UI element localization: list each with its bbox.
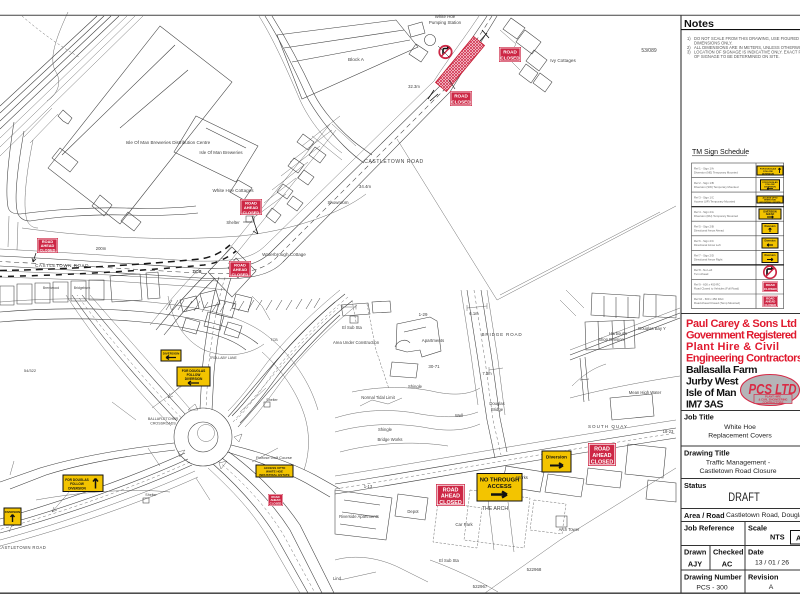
svg-text:CONTRACTORS: CONTRACTORS [763, 400, 784, 404]
svg-text:Access (UP) Temporary Mounted: Access (UP) Temporary Mounted [694, 200, 736, 204]
svg-text:Diversion: Diversion [546, 454, 567, 459]
svg-text:Lind: Lind [333, 576, 342, 581]
svg-text:Showroom: Showroom [328, 200, 349, 205]
svg-text:AJY: AJY [688, 560, 702, 569]
svg-text:NTS: NTS [770, 533, 785, 542]
svg-text:Well: Well [455, 413, 463, 418]
svg-text:White Hoe: White Hoe [435, 14, 456, 19]
svg-text:Drawing Title: Drawing Title [684, 449, 730, 458]
svg-text:Isle of Man: Isle of Man [686, 387, 737, 399]
svg-text:ROAD: ROAD [443, 487, 459, 493]
svg-text:Ballasalla Farm: Ballasalla Farm [686, 364, 758, 376]
svg-text:INDUSTRIAL ESTATE: INDUSTRIAL ESTATE [759, 201, 781, 204]
svg-text:AHEAD: AHEAD [766, 213, 775, 216]
svg-text:CLOSED: CLOSED [270, 501, 282, 505]
svg-text:Waterbrough Cottage: Waterbrough Cottage [262, 252, 306, 257]
svg-text:Shingle: Shingle [378, 427, 393, 432]
svg-text:18-23: 18-23 [663, 429, 674, 434]
svg-text:CLOSED: CLOSED [500, 55, 520, 60]
svg-text:Riverside Apartments: Riverside Apartments [339, 514, 379, 519]
svg-text:CROSSROADS: CROSSROADS [150, 422, 176, 426]
svg-text:TCB: TCB [270, 338, 278, 342]
svg-text:Jurby West: Jurby West [686, 376, 739, 388]
svg-text:CLOSED: CLOSED [40, 249, 56, 253]
svg-text:AHEAD: AHEAD [592, 453, 611, 459]
svg-text:DIVERSION: DIVERSION [163, 352, 180, 356]
svg-text:CLOSED: CLOSED [764, 303, 776, 307]
svg-text:Shelter: Shelter [145, 493, 157, 497]
svg-text:Isle Of Man Breweries: Isle Of Man Breweries [199, 150, 243, 155]
svg-text:Pumping Station: Pumping Station [429, 20, 462, 25]
svg-text:El Sub Sta: El Sub Sta [439, 558, 459, 563]
svg-text:Directional Arrow Left: Directional Arrow Left [694, 243, 721, 247]
svg-text:Checked: Checked [713, 548, 743, 557]
svg-text:Car Park: Car Park [455, 522, 473, 527]
svg-text:White Hoe Cottages: White Hoe Cottages [212, 188, 254, 193]
svg-text:ROAD: ROAD [454, 94, 468, 99]
svg-text:Brentwood: Brentwood [43, 286, 59, 290]
svg-text:Engineering Contractors: Engineering Contractors [686, 353, 800, 365]
svg-text:Bridge Works: Bridge Works [377, 437, 402, 442]
svg-text:Area Under Construction: Area Under Construction [333, 340, 380, 345]
svg-text:13 / 01 / 26: 13 / 01 / 26 [755, 560, 789, 567]
svg-text:Pulrose Golf Course: Pulrose Golf Course [256, 455, 293, 460]
svg-text:INDUSTRIAL ESTATE: INDUSTRIAL ESTATE [259, 473, 289, 477]
svg-text:AHEAD: AHEAD [441, 494, 460, 500]
svg-text:TM Sign Schedule: TM Sign Schedule [692, 149, 749, 156]
svg-text:Road Ahead Closed (Temp Mounte: Road Ahead Closed (Temp Mounted) [694, 301, 740, 305]
svg-text:Diversion: Diversion [765, 225, 776, 228]
svg-text:CASTLETOWN ROAD: CASTLETOWN ROAD [35, 263, 89, 268]
svg-text:30-71: 30-71 [428, 364, 440, 369]
svg-text:Castletown Road Closure: Castletown Road Closure [699, 468, 776, 475]
svg-text:AC: AC [722, 560, 733, 569]
svg-text:Plant Hire & Civil: Plant Hire & Civil [686, 341, 779, 353]
svg-text:34.4m: 34.4m [359, 184, 372, 189]
svg-text:ROAD: ROAD [503, 50, 517, 55]
svg-text:Diversion (RH) Temporary Mount: Diversion (RH) Temporary Mounted [694, 214, 738, 218]
svg-text:Replacement Covers: Replacement Covers [708, 433, 772, 440]
svg-text:IM7 3AS: IM7 3AS [686, 399, 724, 411]
svg-text:Block A: Block A [348, 57, 365, 63]
svg-text:Date: Date [748, 548, 764, 557]
svg-text:Douglas: Douglas [489, 401, 504, 406]
svg-text:PCS - 300: PCS - 300 [696, 585, 728, 592]
svg-text:El Sub Sta: El Sub Sta [342, 325, 362, 330]
svg-text:A3: A3 [796, 534, 800, 543]
svg-text:Shingle: Shingle [408, 384, 423, 389]
svg-text:ROAD: ROAD [594, 447, 610, 453]
svg-text:Traffic Management -: Traffic Management - [706, 460, 770, 467]
svg-text:522968: 522968 [527, 567, 542, 572]
svg-text:Directional Arrow Ahead: Directional Arrow Ahead [694, 229, 724, 233]
svg-text:THE ARCH: THE ARCH [482, 506, 508, 512]
svg-text:SOUTH QUAY: SOUTH QUAY [588, 424, 628, 429]
svg-text:Turn Ahead: Turn Ahead [694, 272, 709, 276]
svg-text:DIVERSION: DIVERSION [68, 486, 86, 490]
svg-text:Arch Tower: Arch Tower [559, 527, 580, 532]
svg-text:DRAFT: DRAFT [728, 492, 760, 504]
svg-text:Works: Works [516, 475, 528, 480]
svg-text:Bridgeburn: Bridgeburn [74, 286, 91, 290]
svg-text:DIVERSION: DIVERSION [762, 173, 774, 175]
svg-text:53/089: 53/089 [641, 48, 657, 54]
svg-text:OF SIGNAGE TO BE DETERMINED ON: OF SIGNAGE TO BE DETERMINED ON SITE. [694, 54, 780, 59]
svg-text:Harbour's: Harbour's [609, 331, 627, 336]
svg-text:Drawn: Drawn [684, 548, 706, 557]
svg-text:TROLLABY LANE: TROLLABY LANE [209, 356, 237, 360]
svg-text:Mean High Water: Mean High Water [629, 390, 662, 395]
svg-text:BALLAFLETCHER: BALLAFLETCHER [148, 417, 179, 421]
svg-text:CASTLETOWN ROAD: CASTLETOWN ROAD [364, 159, 423, 165]
svg-text:CASTLETOWN ROAD: CASTLETOWN ROAD [0, 545, 46, 550]
svg-text:Shop Division: Shop Division [598, 337, 624, 342]
svg-text:CLOSED: CLOSED [243, 210, 260, 215]
svg-text:Paul Carey & Sons Ltd: Paul Carey & Sons Ltd [686, 318, 797, 330]
svg-text:Revision: Revision [748, 573, 778, 582]
svg-text:Area / Road: Area / Road [684, 511, 725, 520]
svg-text:Isle Of Man Breweries Distribu: Isle Of Man Breweries Distribution Centr… [126, 140, 211, 145]
svg-text:Directional Arrow Right: Directional Arrow Right [694, 258, 723, 262]
svg-text:A: A [769, 584, 774, 591]
svg-text:TCB: TCB [192, 269, 201, 274]
svg-text:Scale: Scale [748, 524, 767, 533]
svg-text:DIVERSION: DIVERSION [5, 510, 20, 514]
svg-text:Douglas Bay Y: Douglas Bay Y [638, 326, 666, 331]
svg-text:Diversion: Diversion [765, 239, 776, 242]
svg-text:32.3m: 32.3m [408, 84, 420, 89]
svg-text:CLOSED: CLOSED [232, 272, 249, 277]
svg-text:ROAD: ROAD [42, 240, 53, 244]
svg-text:200m: 200m [96, 246, 107, 251]
svg-text:Shelter: Shelter [226, 220, 240, 225]
svg-text:White Hoe: White Hoe [724, 424, 756, 431]
svg-text:Apartments: Apartments [422, 338, 445, 343]
svg-text:CLOSED: CLOSED [764, 287, 778, 291]
svg-text:Castletown Road, Douglas: Castletown Road, Douglas [726, 512, 800, 519]
svg-text:Depot: Depot [407, 509, 419, 514]
svg-text:522967: 522967 [473, 584, 488, 589]
svg-text:Diversion (NE) Temporary Mount: Diversion (NE) Temporary Mounted [694, 171, 738, 175]
svg-text:Status: Status [684, 481, 706, 490]
svg-text:7.3m: 7.3m [482, 371, 492, 376]
svg-text:CLOSED: CLOSED [591, 459, 614, 465]
svg-text:6.1m: 6.1m [469, 311, 479, 316]
svg-text:BRIDGE ROAD: BRIDGE ROAD [482, 332, 523, 337]
svg-text:Bridge: Bridge [491, 407, 504, 412]
svg-text:NO THROUGH: NO THROUGH [480, 478, 520, 484]
svg-text:Diversion (SW) Temporary Mount: Diversion (SW) Temporary Mounted [694, 185, 739, 189]
svg-text:1): 1) [687, 36, 691, 41]
svg-text:DIVERSION: DIVERSION [185, 377, 203, 381]
svg-text:Job Reference: Job Reference [684, 524, 734, 533]
svg-text:CLOSED: CLOSED [439, 500, 462, 506]
svg-text:Ivy Cottages: Ivy Cottages [550, 58, 576, 63]
svg-text:AHEAD: AHEAD [41, 244, 55, 248]
svg-text:Diversion: Diversion [765, 254, 776, 257]
svg-text:1-29: 1-29 [419, 312, 428, 317]
svg-text:Notes: Notes [684, 19, 714, 30]
svg-text:Drawing Number: Drawing Number [684, 573, 742, 582]
svg-text:Shelter: Shelter [266, 398, 278, 402]
svg-text:ACCESS: ACCESS [487, 484, 511, 490]
svg-text:Road Closed to Vehicles (Full: Road Closed to Vehicles (Full Road) [694, 287, 739, 291]
svg-text:CLOSED: CLOSED [451, 99, 471, 104]
svg-text:Normal Tidal Limit: Normal Tidal Limit [361, 395, 395, 400]
svg-text:Government Registered: Government Registered [686, 330, 797, 342]
svg-text:Job Title: Job Title [684, 413, 714, 422]
svg-text:3): 3) [687, 50, 691, 55]
svg-text:54/322: 54/322 [24, 368, 37, 373]
svg-text:1-13: 1-13 [364, 484, 373, 489]
